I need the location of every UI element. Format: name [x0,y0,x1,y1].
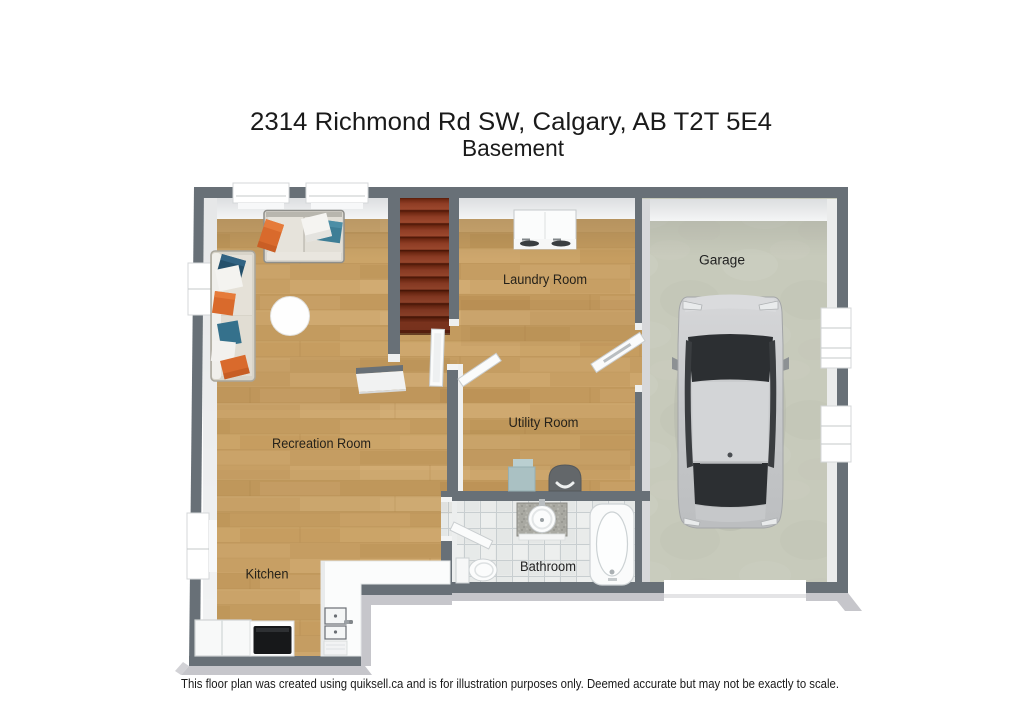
svg-text:2314 Richmond Rd SW, Calgary,: 2314 Richmond Rd SW, Calgary, AB T2T 5E4 [250,108,772,136]
svg-text:Bathroom: Bathroom [520,559,576,574]
svg-text:Basement: Basement [462,135,565,161]
svg-text:Kitchen: Kitchen [246,567,289,582]
svg-text:Utility Room: Utility Room [509,415,579,430]
svg-text:Garage: Garage [699,253,745,268]
svg-text:Laundry Room: Laundry Room [503,272,587,287]
svg-text:This floor plan was created us: This floor plan was created using quikse… [181,676,839,691]
svg-text:Recreation Room: Recreation Room [272,436,371,451]
